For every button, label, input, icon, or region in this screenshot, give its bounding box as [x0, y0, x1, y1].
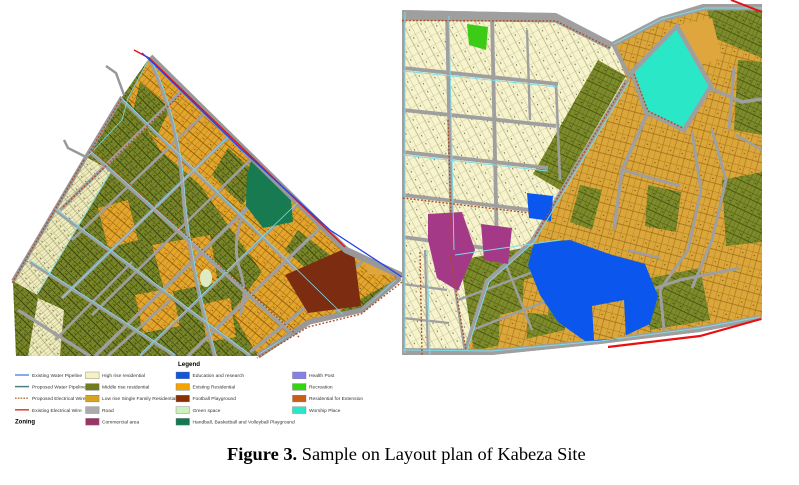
svg-text:Low rise Single Family Residen: Low rise Single Family Residential [102, 396, 176, 402]
svg-text:Middle rise residential: Middle rise residential [102, 385, 149, 391]
svg-text:Worship Place: Worship Place [309, 408, 341, 414]
svg-text:Football Playground: Football Playground [193, 396, 237, 402]
svg-text:Proposed Water Pipeline: Proposed Water Pipeline [32, 385, 86, 391]
svg-text:Existing Water Pipeline: Existing Water Pipeline [32, 373, 82, 379]
svg-text:Handball, Basketball and Volle: Handball, Basketball and Volleyball Play… [193, 419, 296, 425]
svg-text:Green space: Green space [193, 408, 221, 414]
svg-text:Zoning: Zoning [15, 419, 35, 425]
svg-text:Legend: Legend [178, 361, 200, 368]
svg-text:Figure 3. Sample on Layout pla: Figure 3. Sample on Layout plan of Kabez… [227, 444, 586, 464]
svg-text:Road: Road [102, 408, 114, 414]
svg-text:Existing Residential: Existing Residential [193, 385, 236, 391]
svg-text:Residential for Extension: Residential for Extension [309, 396, 363, 402]
svg-text:Recreation: Recreation [309, 385, 333, 391]
svg-text:Proposed Electrical Wire: Proposed Electrical Wire [32, 396, 86, 402]
svg-text:Commercial area: Commercial area [102, 419, 140, 425]
svg-text:Health Post: Health Post [309, 373, 335, 379]
svg-text:High rise residential: High rise residential [102, 373, 145, 379]
svg-text:Existing Electrical Wire: Existing Electrical Wire [32, 408, 82, 414]
svg-text:Education and research: Education and research [193, 373, 245, 379]
